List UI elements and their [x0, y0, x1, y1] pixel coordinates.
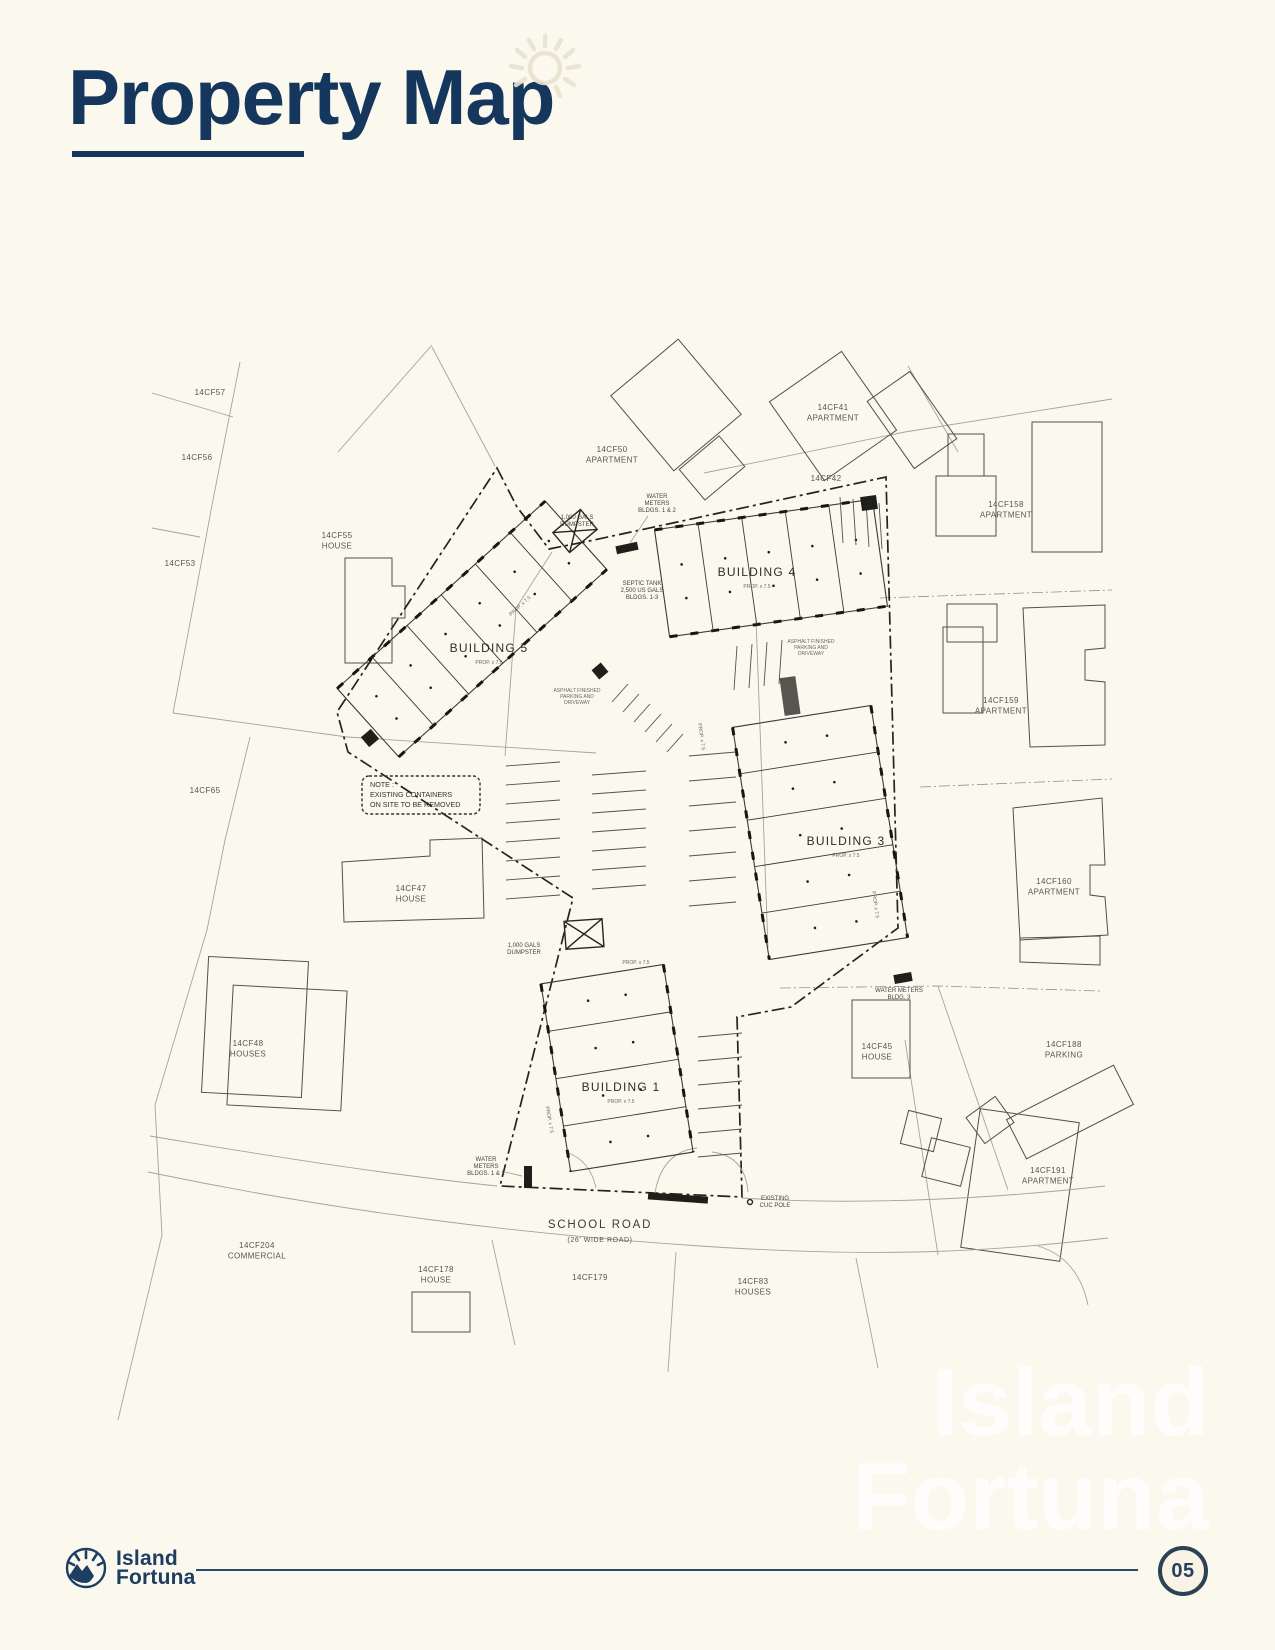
parcel-label: HOUSE: [862, 1053, 892, 1062]
asphalt-label-2: ASPHALT FINISHED PARKING AND DRIVEWAY: [787, 639, 834, 657]
note-line-1: NOTE :: [370, 780, 394, 789]
svg-text:PROP. x 7.5: PROP. x 7.5: [696, 723, 706, 751]
svg-text:SEPTIC TANK: SEPTIC TANK: [623, 581, 662, 587]
parking-stalls: [506, 497, 882, 1157]
building-3-label: BUILDING 3: [807, 834, 886, 848]
map-annotations: WATER METERS BLDGS. 1 & 2 1,000 GALS DUM…: [467, 494, 923, 1209]
dumpster-north-label: 1,000 GALS DUMPSTER: [560, 515, 594, 528]
note-line-2: EXISTING CONTAINERS: [370, 790, 452, 799]
building-5: [337, 501, 607, 757]
footer-divider: [196, 1569, 1138, 1571]
svg-text:METERS: METERS: [644, 501, 669, 507]
parcel-label: PARKING: [1045, 1051, 1083, 1060]
svg-text:DRIVEWAY: DRIVEWAY: [798, 651, 825, 657]
parcel-label: 14CF53: [165, 559, 196, 568]
svg-text:EXISTING: EXISTING: [761, 1196, 789, 1202]
svg-text:PROP. x 7.5: PROP. x 7.5: [870, 891, 880, 919]
water-meters-north-label: WATER METERS BLDGS. 1 & 2: [630, 494, 677, 543]
building-4-label: BUILDING 4: [718, 565, 797, 579]
svg-text:PROP. x 7.5: PROP. x 7.5: [743, 584, 770, 590]
parcel-label: 14CF191: [1030, 1166, 1066, 1175]
dumpster-south-label: 1,000 GALS DUMPSTER: [507, 943, 541, 956]
property-map: NOTE : EXISTING CONTAINERS ON SITE TO BE…: [0, 0, 1275, 1650]
parcel-label: APARTMENT: [807, 414, 859, 423]
svg-text:BLDGS. 1-3: BLDGS. 1-3: [626, 595, 659, 601]
svg-text:BLDG. 3: BLDG. 3: [887, 995, 911, 1001]
page-number-badge: 05: [1158, 1546, 1208, 1596]
svg-text:WATER: WATER: [647, 494, 669, 500]
parcel-label: 14CF56: [182, 453, 213, 462]
building-1: [541, 964, 693, 1171]
parcel-label: 14CF178: [418, 1265, 454, 1274]
parcel-label: HOUSES: [735, 1288, 771, 1297]
cuc-pole-label: EXISTING CUC POLE: [760, 1196, 791, 1209]
svg-text:2,500 US GALS: 2,500 US GALS: [621, 588, 664, 594]
septic-tank-label: SEPTIC TANK 2,500 US GALS BLDGS. 1-3: [621, 581, 664, 601]
svg-text:PROP. x 7.5: PROP. x 7.5: [622, 960, 649, 966]
brand-name: Island Fortuna: [116, 1549, 196, 1588]
svg-text:WATER: WATER: [476, 1157, 498, 1163]
island-fortuna-logo-icon: [64, 1546, 108, 1590]
water-meters-south-label: WATER METERS BLDGS. 1 & 2: [467, 1157, 522, 1177]
parcel-label: 14CF204: [239, 1241, 275, 1250]
parcel-label: 14CF41: [818, 403, 849, 412]
parcel-label: APARTMENT: [1022, 1177, 1074, 1186]
parcel-label: APARTMENT: [980, 511, 1032, 520]
road-width-label: (26' WIDE ROAD): [567, 1237, 632, 1244]
parcel-label: 14CF42: [811, 474, 842, 483]
parcel-label: HOUSE: [322, 542, 352, 551]
note-line-3: ON SITE TO BE REMOVED: [370, 800, 460, 809]
svg-text:PROP. x 7.5: PROP. x 7.5: [475, 660, 502, 666]
brochure-page: Property Map: [0, 0, 1275, 1650]
parcel-label: 14CF65: [190, 786, 221, 795]
asphalt-label-1: ASPHALT FINISHED PARKING AND DRIVEWAY: [553, 688, 600, 706]
parcel-label: 14CF50: [597, 445, 628, 454]
note-box: NOTE : EXISTING CONTAINERS ON SITE TO BE…: [362, 776, 480, 814]
svg-text:1,000 GALS: 1,000 GALS: [561, 515, 594, 521]
svg-text:1,000 GALS: 1,000 GALS: [508, 943, 541, 949]
svg-text:DUMPSTER: DUMPSTER: [507, 950, 541, 956]
parcel-label: 14CF188: [1046, 1040, 1082, 1049]
svg-text:DRIVEWAY: DRIVEWAY: [564, 700, 591, 706]
parcel-label: 14CF83: [738, 1277, 769, 1286]
parcel-label: APARTMENT: [586, 456, 638, 465]
svg-text:BLDGS. 1 & 2: BLDGS. 1 & 2: [467, 1171, 505, 1177]
cuc-pole-marker: [748, 1200, 753, 1205]
svg-text:METERS: METERS: [473, 1164, 498, 1170]
svg-text:PROP. x 7.5: PROP. x 7.5: [832, 853, 859, 859]
page-number: 05: [1171, 1560, 1194, 1583]
footer-brand: Island Fortuna: [64, 1546, 196, 1590]
neighbor-buildings: [202, 339, 1134, 1332]
svg-text:DUMPSTER: DUMPSTER: [560, 522, 594, 528]
parcel-label: 14CF158: [988, 500, 1024, 509]
building-1-label: BUILDING 1: [582, 1080, 661, 1094]
parcel-label: HOUSES: [230, 1050, 266, 1059]
site-details: [361, 495, 913, 1205]
parcel-label: APARTMENT: [975, 707, 1027, 716]
building-3: [733, 705, 908, 959]
parcel-label: COMMERCIAL: [228, 1252, 286, 1261]
parcel-label: 14CF48: [233, 1039, 264, 1048]
dumpster-pad-south: [564, 919, 604, 950]
svg-text:CUC POLE: CUC POLE: [760, 1203, 791, 1209]
parcel-label: 14CF45: [862, 1042, 893, 1051]
water-meter-b3-label: WATER METERS BLDG. 3: [875, 988, 923, 1001]
svg-text:BLDGS. 1 & 2: BLDGS. 1 & 2: [638, 508, 676, 514]
driveway-edges: [505, 552, 768, 1193]
svg-text:PROP. x 7.5: PROP. x 7.5: [607, 1099, 634, 1105]
building-5-label: BUILDING 5: [450, 641, 529, 655]
road-name-label: SCHOOL ROAD: [548, 1219, 652, 1231]
parcel-label: 14CF160: [1036, 877, 1072, 886]
parcel-label: 14CF57: [195, 388, 226, 397]
parcel-label: HOUSE: [421, 1276, 451, 1285]
svg-text:PROP. x 7.5: PROP. x 7.5: [544, 1106, 555, 1134]
parcel-label: APARTMENT: [1028, 888, 1080, 897]
parcel-label: 14CF179: [572, 1273, 608, 1282]
svg-text:WATER METERS: WATER METERS: [875, 988, 923, 994]
parcel-label: 14CF55: [322, 531, 353, 540]
parcel-label: HOUSE: [396, 895, 426, 904]
parcel-label: 14CF159: [983, 696, 1019, 705]
parcel-label: 14CF47: [396, 884, 427, 893]
